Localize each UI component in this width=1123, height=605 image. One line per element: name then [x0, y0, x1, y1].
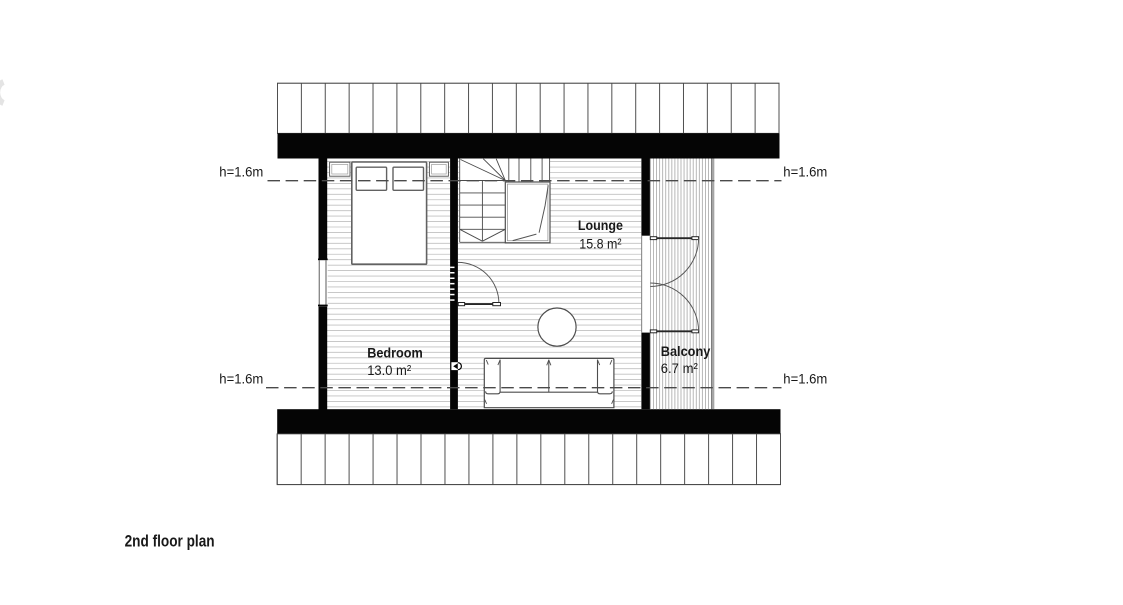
svg-text:h=1.6m: h=1.6m [783, 371, 827, 387]
svg-text:6.7 m²: 6.7 m² [661, 361, 698, 377]
svg-text:Bedroom: Bedroom [367, 346, 423, 362]
svg-text:h=1.6m: h=1.6m [219, 371, 263, 387]
svg-text:13.0 m²: 13.0 m² [367, 363, 411, 379]
svg-text:15.8 m²: 15.8 m² [579, 237, 621, 253]
svg-text:Balcony: Balcony [661, 344, 711, 360]
svg-text:h=1.6m: h=1.6m [783, 164, 827, 180]
svg-text:2nd floor plan: 2nd floor plan [125, 532, 215, 551]
svg-text:Lounge: Lounge [578, 218, 623, 234]
svg-text:h=1.6m: h=1.6m [219, 164, 263, 180]
